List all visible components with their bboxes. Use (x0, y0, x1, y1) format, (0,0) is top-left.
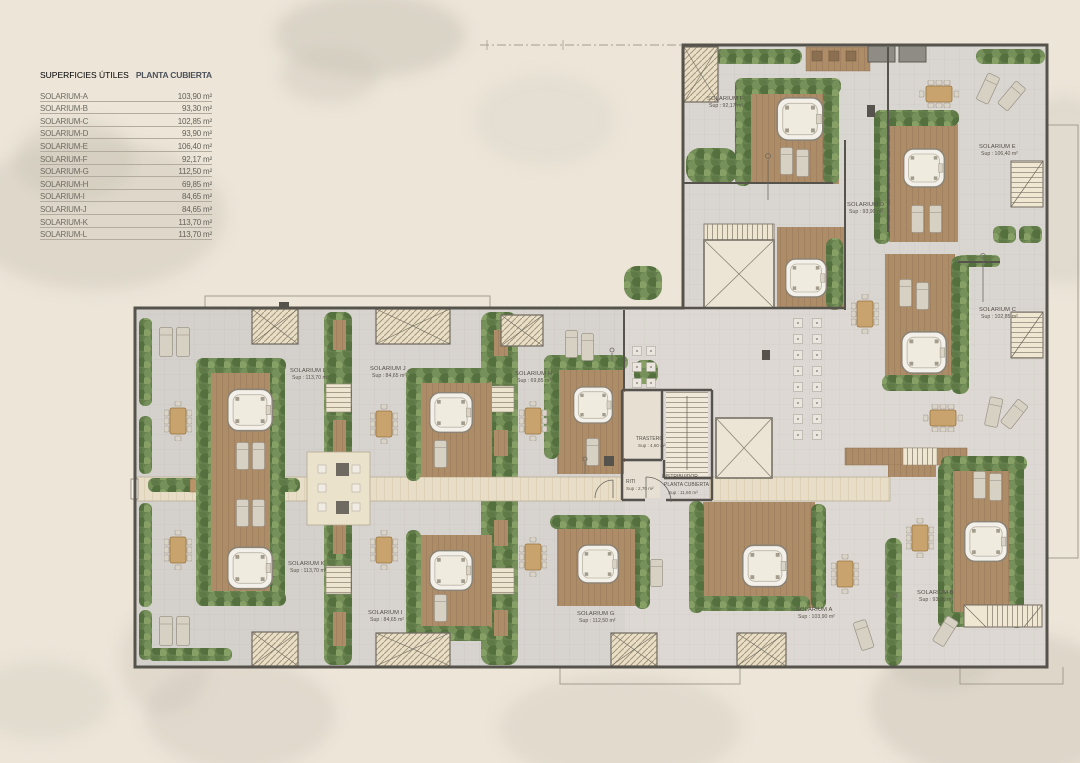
lounger (177, 617, 190, 646)
stairs-skylight-upper (704, 224, 774, 240)
room-label-solarium-c: SOLARIUM CSup : 102,85 m² (979, 307, 1018, 320)
row-value: 106,40 m² (178, 142, 212, 151)
table-row: SOLARIUM-B93,30 m² (40, 102, 212, 115)
lounger (565, 331, 577, 358)
row-value: 93,90 m² (182, 129, 212, 138)
skylight-upper (704, 240, 774, 308)
svg-text:Sup : 93,30 m²: Sup : 93,30 m² (919, 597, 953, 603)
lounger (160, 328, 173, 357)
row-value: 84,65 m² (182, 192, 212, 201)
distribuidor-label: DISTRIBUIDOR (662, 474, 698, 480)
jacuzzi-e (904, 149, 945, 187)
lounger (973, 472, 985, 499)
row-value: 84,65 m² (182, 205, 212, 214)
lounger (899, 280, 911, 307)
row-value: 113,70 m² (178, 230, 212, 239)
riti-label: RITI (626, 479, 635, 485)
lounger (911, 206, 923, 233)
svg-text:Sup : 103,90 m²: Sup : 103,90 m² (798, 614, 835, 620)
row-value: 92,17 m² (182, 155, 212, 164)
room-label-solarium-i: SOLARIUM ISup : 84,65 m² (368, 610, 404, 623)
svg-text:SOLARIUM F: SOLARIUM F (707, 96, 744, 102)
table-row: SOLARIUM-L113,70 m² (40, 228, 212, 241)
skylight-lower (716, 418, 772, 478)
row-value: 69,85 m² (182, 180, 212, 189)
row-label: SOLARIUM-H (40, 180, 88, 189)
svg-text:Sup : 113,70 m²: Sup : 113,70 m² (292, 375, 329, 381)
lounger (160, 617, 173, 646)
room-label-solarium-h: SOLARIUM HSup : 69,85 m² (515, 371, 552, 384)
room-label-solarium-b: SOLARIUM BSup : 93,30 m² (917, 590, 954, 603)
areas-table: SUPERFICIES ÚTILES PLANTA CUBIERTA SOLAR… (40, 70, 212, 240)
walkway-pavilion (307, 452, 370, 525)
room-label-solarium-l: SOLARIUM LSup : 113,70 m² (290, 368, 329, 381)
room-label-solarium-d: SOLARIUM DSup : 93,90 m² (847, 202, 884, 215)
jacuzzi-k (228, 547, 272, 588)
lounger (177, 328, 190, 357)
bench (236, 500, 248, 527)
svg-text:SOLARIUM K: SOLARIUM K (288, 561, 325, 567)
jacuzzi-j (430, 393, 473, 433)
lounger (929, 206, 941, 233)
table-row: SOLARIUM-C102,85 m² (40, 114, 212, 127)
jacuzzi-c (902, 332, 946, 373)
lounger (780, 148, 792, 175)
table-row: SOLARIUM-E106,40 m² (40, 139, 212, 152)
pergola (611, 633, 657, 666)
pergola (376, 309, 450, 344)
pergola (684, 47, 718, 102)
svg-text:SOLARIUM E: SOLARIUM E (979, 144, 1016, 150)
row-value: 93,30 m² (182, 104, 212, 113)
riti-sup: Sup : 2,70 m² (626, 486, 654, 491)
row-label: SOLARIUM-F (40, 155, 87, 164)
room-label-solarium-g: SOLARIUM GSup : 112,50 m² (577, 611, 616, 624)
jacuzzi-b (965, 522, 1008, 562)
svg-text:Sup : 92,17 m²: Sup : 92,17 m² (709, 103, 743, 109)
svg-text:SOLARIUM J: SOLARIUM J (370, 366, 406, 372)
jacuzzi-h (574, 387, 613, 423)
jacuzzi-i (430, 551, 473, 591)
room-label-solarium-a: SOLARIUM ASup : 103,90 m² (796, 607, 835, 620)
row-value: 102,85 m² (178, 117, 212, 126)
bench (586, 439, 598, 466)
table-row: SOLARIUM-A103,90 m² (40, 89, 212, 102)
svg-text:Sup : 84,65 m²: Sup : 84,65 m² (372, 373, 406, 379)
trastero-label: TRASTERO (636, 436, 663, 442)
row-label: SOLARIUM-G (40, 167, 89, 176)
svg-text:Sup : 84,65 m²: Sup : 84,65 m² (370, 617, 404, 623)
bench (236, 443, 248, 470)
jacuzzi-l (228, 389, 272, 430)
row-label: SOLARIUM-L (40, 230, 87, 239)
svg-text:SOLARIUM L: SOLARIUM L (290, 368, 327, 374)
trastero-room (624, 392, 660, 458)
lounger (581, 334, 593, 361)
table-row: SOLARIUM-F92,17 m² (40, 152, 212, 165)
table-row: SOLARIUM-I84,65 m² (40, 190, 212, 203)
plan-name: PLANTA CUBIERTA (136, 70, 212, 80)
row-label: SOLARIUM-J (40, 205, 86, 214)
row-label: SOLARIUM-K (40, 218, 88, 227)
areas-table-header: SUPERFICIES ÚTILES PLANTA CUBIERTA (40, 70, 212, 80)
stairs-east-upper (1011, 161, 1043, 207)
jacuzzi-a (743, 545, 787, 586)
table-row: SOLARIUM-D93,90 m² (40, 127, 212, 140)
pergola (376, 633, 450, 666)
floor-plan-page: SUPERFICIES ÚTILES PLANTA CUBIERTA SOLAR… (0, 0, 1080, 763)
bench (252, 500, 264, 527)
jacuzzi-f (777, 98, 823, 140)
stairs-southeast (964, 605, 1042, 627)
room-label-solarium-j: SOLARIUM JSup : 84,65 m² (370, 366, 406, 379)
svg-text:Sup : 106,40 m²: Sup : 106,40 m² (981, 151, 1018, 157)
svg-text:Sup : 93,90 m²: Sup : 93,90 m² (849, 209, 883, 215)
pergola (252, 632, 298, 666)
room-label-solarium-k: SOLARIUM KSup : 113,70 m² (288, 561, 327, 574)
svg-text:SOLARIUM A: SOLARIUM A (796, 607, 832, 613)
room-label-solarium-f: SOLARIUM FSup : 92,17 m² (707, 96, 744, 109)
pergola (737, 633, 786, 666)
svg-text:SOLARIUM I: SOLARIUM I (368, 610, 403, 616)
svg-text:SOLARIUM H: SOLARIUM H (515, 371, 552, 377)
lounger (650, 560, 662, 587)
pergola (252, 309, 298, 344)
bench (434, 595, 446, 622)
row-label: SOLARIUM-C (40, 117, 88, 126)
lounger (989, 474, 1001, 501)
lounger (796, 150, 808, 177)
table-row: SOLARIUM-K113,70 m² (40, 215, 212, 228)
jacuzzi-g (578, 545, 619, 583)
row-label: SOLARIUM-E (40, 142, 88, 151)
svg-text:SOLARIUM C: SOLARIUM C (979, 307, 1016, 313)
row-label: SOLARIUM-B (40, 104, 88, 113)
table-row: SOLARIUM-G112,50 m² (40, 165, 212, 178)
row-value: 103,90 m² (178, 92, 212, 101)
distribuidor-sup: Sup : 11,60 m² (668, 490, 698, 495)
areas-table-title: SUPERFICIES ÚTILES (40, 70, 129, 80)
trastero-sup: Sup : 4,50 m² (638, 443, 666, 448)
table-row: SOLARIUM-J84,65 m² (40, 202, 212, 215)
svg-text:Sup : 102,85 m²: Sup : 102,85 m² (981, 314, 1018, 320)
lounger (916, 283, 928, 310)
row-value: 113,70 m² (178, 218, 212, 227)
row-value: 112,50 m² (178, 167, 212, 176)
row-label: SOLARIUM-D (40, 129, 88, 138)
svg-text:Sup : 112,50 m²: Sup : 112,50 m² (579, 618, 616, 624)
bench (252, 443, 264, 470)
svg-text:Sup : 113,70 m²: Sup : 113,70 m² (290, 568, 327, 574)
row-label: SOLARIUM-A (40, 92, 88, 101)
bench (434, 441, 446, 468)
svg-text:Sup : 69,85 m²: Sup : 69,85 m² (517, 378, 551, 384)
room-label-solarium-e: SOLARIUM ESup : 106,40 m² (979, 144, 1018, 157)
svg-text:SOLARIUM B: SOLARIUM B (917, 590, 954, 596)
distribuidor-sub: PLANTA CUBIERTA (664, 482, 710, 488)
row-label: SOLARIUM-I (40, 192, 85, 201)
table-row: SOLARIUM-H69,85 m² (40, 177, 212, 190)
svg-text:SOLARIUM D: SOLARIUM D (847, 202, 884, 208)
jacuzzi-d (786, 259, 827, 297)
pergola (501, 315, 543, 346)
svg-text:SOLARIUM G: SOLARIUM G (577, 611, 615, 617)
